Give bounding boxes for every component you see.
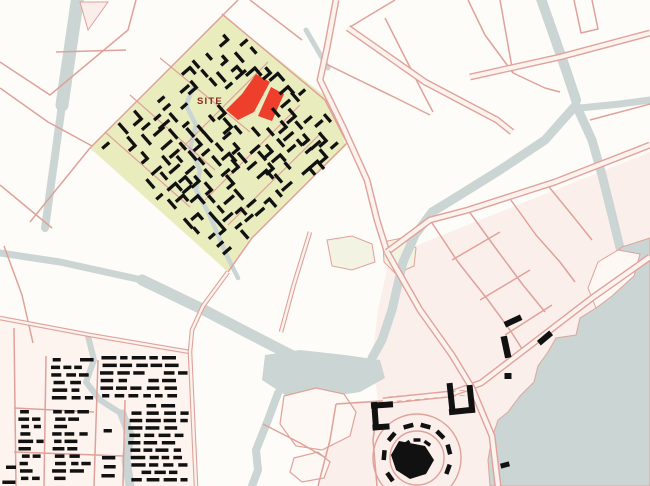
map-viewport: SITE bbox=[0, 0, 650, 486]
site-label-group: SITE bbox=[197, 96, 223, 107]
site-label: SITE bbox=[197, 96, 223, 107]
urban-plan-map: SITE bbox=[0, 0, 650, 486]
